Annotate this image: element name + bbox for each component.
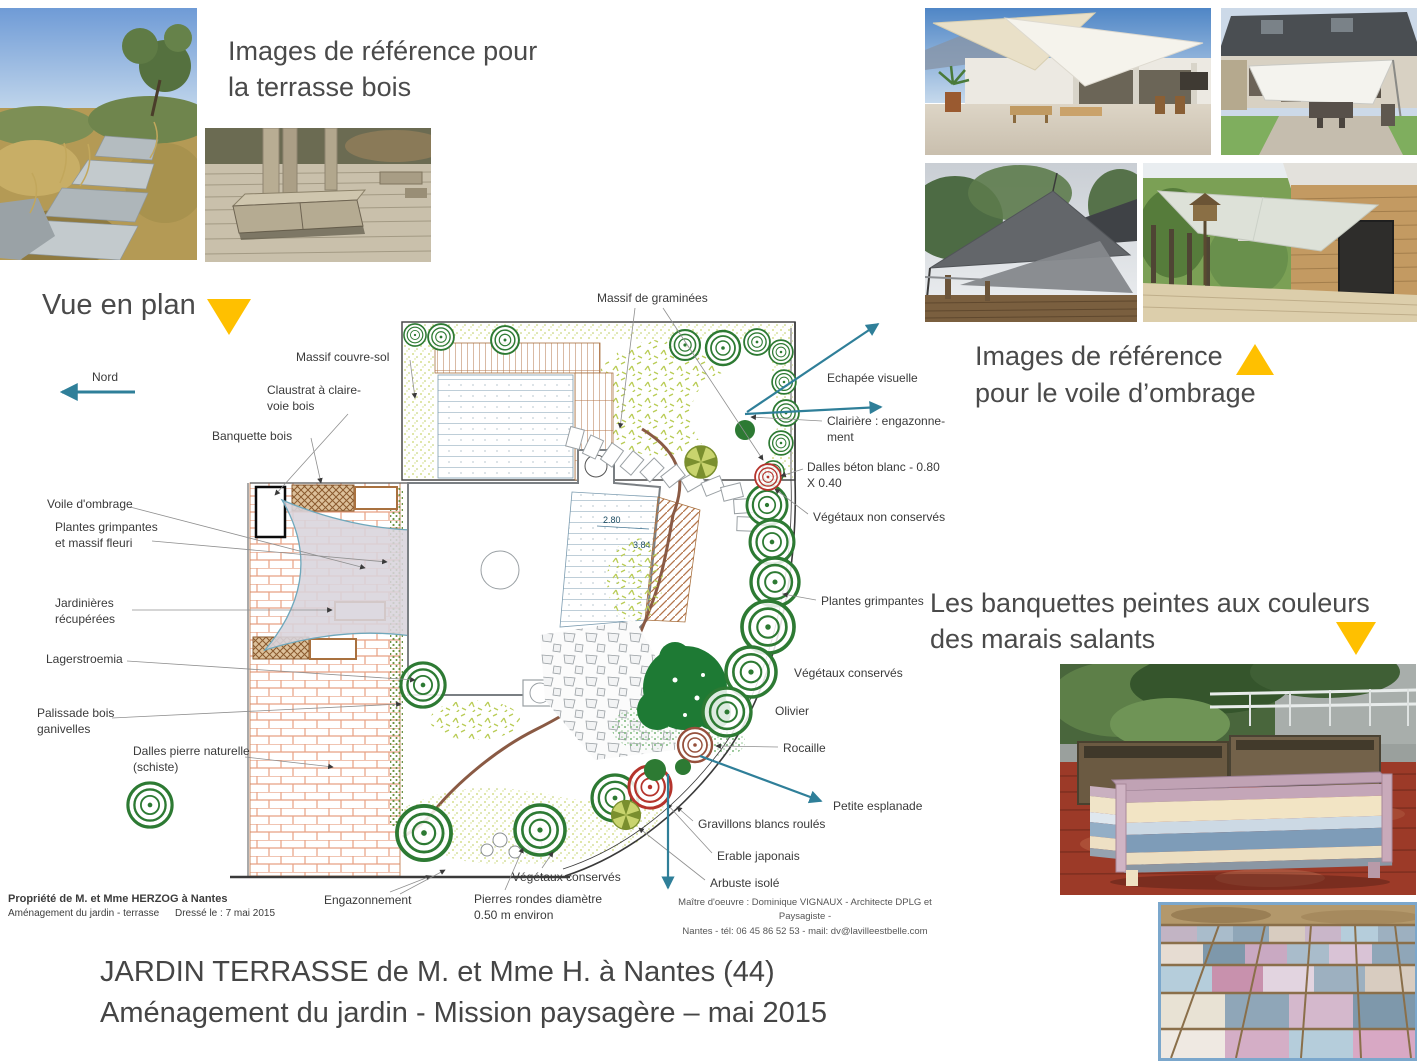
photo-sail-gray: [925, 163, 1137, 322]
page-title: JARDIN TERRASSE de M. et Mme H. à Nantes…: [100, 952, 827, 1033]
plan-label-plantes-grimpantes-massif: Plantes grimpantes et massif fleuri: [55, 520, 158, 551]
plan-label-rocaille: Rocaille: [783, 741, 826, 757]
plan-label-petite-esplanade: Petite esplanade: [833, 799, 922, 815]
photo-sail-wood-house-graphic: [1143, 163, 1417, 322]
marais-row-4: [1161, 993, 1415, 1029]
photo-terrace-steps: [0, 8, 197, 260]
marais-row-5: [1161, 1029, 1415, 1058]
photo-terrace-steps-graphic: [0, 8, 197, 260]
plan-label-vegetaux-conserves-2: Végétaux conservés: [512, 870, 621, 886]
plan-label-nord: Nord: [92, 370, 118, 386]
plan-label-dalles-pierre: Dalles pierre naturelle (schiste): [133, 744, 250, 775]
plan-label-jardinieres: Jardinières récupérées: [55, 596, 115, 627]
plan-label-palissade: Palissade bois ganivelles: [37, 706, 114, 737]
plan-dimension-width: 2.80: [603, 515, 621, 525]
plan-arbuste-2: [612, 801, 641, 830]
photo-sail-patio-graphic: [925, 8, 1211, 155]
triangle-up-voile-icon: [1236, 344, 1274, 375]
plan-label-pierres-rondes: Pierres rondes diamètre 0.50 m environ: [474, 892, 602, 923]
photo-sail-house-graphic: [1221, 8, 1417, 155]
photo-sail-wood-house: [1143, 163, 1417, 322]
photo-banquette-graphic: [1060, 664, 1416, 895]
plan-label-dalles-beton: Dalles béton blanc - 0.80 X 0.40: [807, 460, 940, 491]
photo-terrace-bench-graphic: [205, 128, 431, 262]
plan-arbuste-1: [685, 446, 717, 478]
plan-label-claustrat: Claustrat à claire- voie bois: [267, 383, 361, 414]
photo-sail-patio: [925, 8, 1211, 155]
plan-label-massif-couvre-sol: Massif couvre-sol: [296, 350, 389, 366]
plan-label-voile-ombrage: Voile d'ombrage: [47, 497, 133, 513]
cartouche-date: Dressé le : 7 mai 2015: [175, 908, 275, 919]
plan-label-massif-graminees: Massif de graminées: [597, 291, 708, 307]
heading-voile-reference-line2: pour le voile d’ombrage: [975, 375, 1256, 411]
marais-row-2: [1161, 943, 1415, 965]
photo-sail-house: [1221, 8, 1417, 155]
photo-sail-gray-graphic: [925, 163, 1137, 322]
plan-label-banquette-bois: Banquette bois: [212, 429, 292, 445]
plan-label-erable: Erable japonais: [717, 849, 800, 865]
photo-terrace-bench: [205, 128, 431, 262]
plan-label-vegetaux-non-conserves: Végétaux non conservés: [813, 510, 945, 526]
plan-label-engazonnement: Engazonnement: [324, 893, 411, 909]
photo-marais-salants: [1158, 902, 1417, 1061]
plan-label-echapee: Echapée visuelle: [827, 371, 918, 387]
plan-label-clairiere: Clairière : engazonne- ment: [827, 414, 945, 445]
plan-label-lagerstroemia: Lagerstroemia: [46, 652, 123, 668]
marais-row-1: [1161, 925, 1415, 943]
plan-label-gravillons: Gravillons blancs roulés: [698, 817, 825, 833]
plan-label-olivier: Olivier: [775, 704, 809, 720]
cartouche-project: Aménagement du jardin - terrasse: [8, 908, 159, 919]
plan-label-arbuste: Arbuste isolé: [710, 876, 779, 892]
banquette-stripes: [1122, 784, 1392, 873]
plan-label-plantes-grimpantes: Plantes grimpantes: [821, 594, 924, 610]
garden-plan-drawing: 2.80 3.84: [35, 280, 935, 950]
plan-rocaille: [678, 728, 712, 762]
plan-claustra: [256, 487, 285, 537]
photo-banquette-peinte: [1060, 664, 1416, 895]
photo-marais-graphic: [1161, 905, 1415, 1058]
arrow-esplanade: [700, 756, 821, 801]
plan-terrasse-bois-haute: [438, 375, 573, 478]
heading-terrasse-reference: Images de référence pour la terrasse boi…: [228, 33, 537, 106]
heading-voile-reference-line1: Images de référence: [975, 338, 1223, 374]
plan-label-vegetaux-conserves: Végétaux conservés: [794, 666, 903, 682]
heading-banquettes: Les banquettes peintes aux couleurs des …: [930, 585, 1370, 658]
credits-architect: Maître d'oeuvre : Dominique VIGNAUX - Ar…: [655, 896, 955, 939]
presentation-page: Images de référence pour la terrasse boi…: [0, 0, 1417, 1063]
triangle-down-banquettes-icon: [1336, 622, 1376, 655]
cartouche-owner: Propriété de M. et Mme HERZOG à Nantes: [8, 893, 227, 905]
